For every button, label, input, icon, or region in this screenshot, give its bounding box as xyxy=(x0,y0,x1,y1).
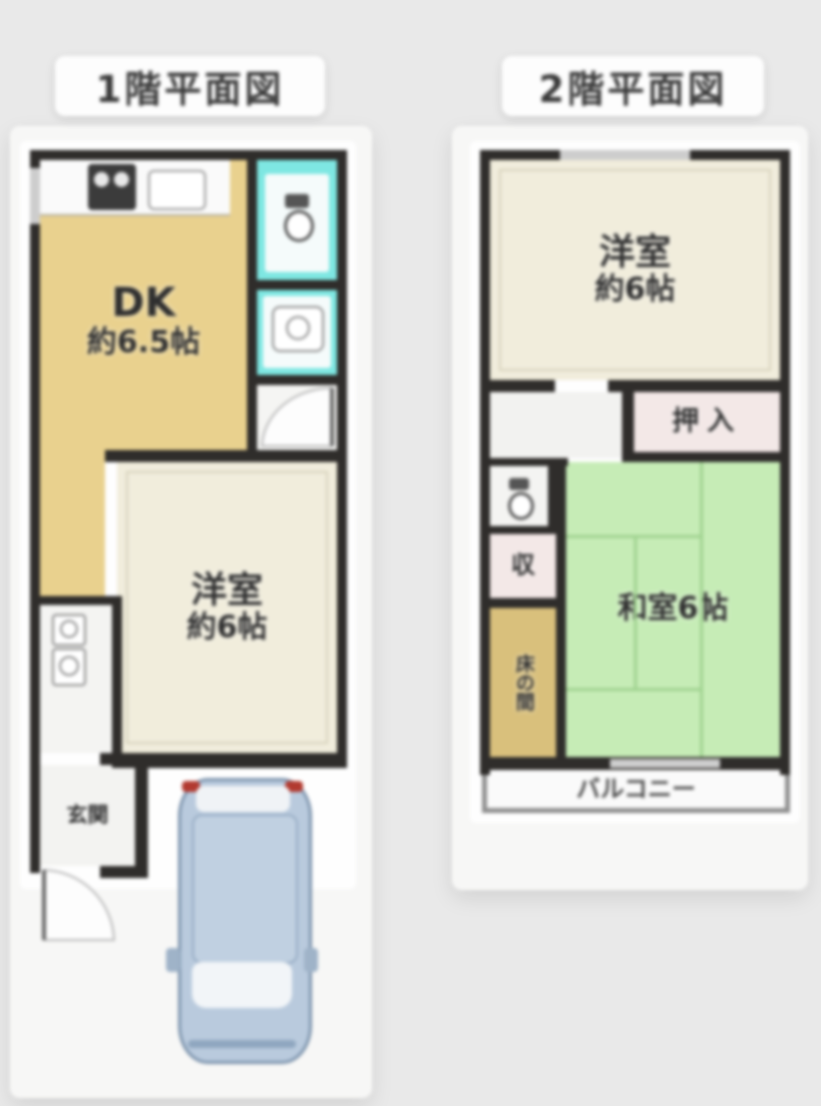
wall xyxy=(100,753,148,765)
wall xyxy=(247,150,257,458)
floorplan-image: 1階平面図 2階平面図 DK 約6.5帖 洋室 約6帖 xyxy=(0,0,821,1106)
balcony-door-segment xyxy=(610,759,720,768)
car-rear-window xyxy=(196,786,290,812)
tokonoma-label: 床の間 xyxy=(512,654,534,711)
wall xyxy=(100,866,148,878)
stove-icon xyxy=(88,164,136,210)
car-mirror-left xyxy=(166,948,180,972)
door-arc-entrance xyxy=(40,868,116,944)
wall xyxy=(556,462,566,767)
wall xyxy=(490,380,555,392)
floor1-title: 1階平面図 xyxy=(96,59,285,113)
stair-hall-2f xyxy=(490,392,622,458)
toilet-bowl-icon-2f xyxy=(508,492,534,520)
washbasin-bowl-icon xyxy=(286,316,310,340)
toilet-icon-1f xyxy=(285,194,309,208)
wall xyxy=(480,526,558,534)
wall xyxy=(780,150,790,775)
wall xyxy=(135,753,148,878)
entrance-label: 玄関 xyxy=(67,803,109,827)
hallway-1f xyxy=(40,452,105,598)
balcony-wall xyxy=(482,770,487,812)
dk-room-label: DK xyxy=(87,280,200,326)
tatami-mat-line xyxy=(634,535,637,688)
toilet-bowl-icon-1f xyxy=(284,210,314,242)
blurred-stage: 1階平面図 2階平面図 DK 約6.5帖 洋室 約6帖 xyxy=(0,0,821,1106)
western-room-2f-border xyxy=(499,169,771,371)
car-front-grille xyxy=(188,1040,296,1048)
wall xyxy=(30,596,122,605)
wall xyxy=(247,375,347,385)
tatami-mat-line xyxy=(566,688,703,691)
wall xyxy=(622,452,790,462)
window-segment-2f xyxy=(560,150,690,160)
entrance-room: 玄関 xyxy=(40,765,135,866)
car-windshield xyxy=(192,962,292,1008)
floor2-title: 2階平面図 xyxy=(539,59,728,113)
toilet-icon-2f xyxy=(509,478,529,490)
balcony-label: バルコニー xyxy=(576,776,696,804)
balcony: バルコニー xyxy=(487,772,785,808)
car-roof xyxy=(192,814,298,964)
wall xyxy=(105,450,347,462)
balcony-wall xyxy=(482,808,790,813)
floor2-title-badge: 2階平面図 xyxy=(502,56,764,116)
wall xyxy=(30,150,40,775)
tatami-room: 和室6帖 xyxy=(566,462,780,757)
wall xyxy=(622,385,634,462)
wall xyxy=(30,150,347,160)
car-mirror-right xyxy=(304,948,318,972)
window-segment-1f xyxy=(30,168,40,224)
washing-machine-drum-icon xyxy=(59,656,79,676)
storage-label: 収 xyxy=(511,552,535,580)
closet-room-2f: 押入 xyxy=(634,392,780,452)
closet-label: 押入 xyxy=(672,406,742,437)
wall xyxy=(112,600,122,765)
wall xyxy=(30,775,40,873)
door-arc-vestibule xyxy=(258,386,334,448)
floor1-title-badge: 1階平面図 xyxy=(55,56,325,116)
wall xyxy=(480,598,562,608)
kitchen-sink-icon xyxy=(148,170,206,210)
washbasin-bowl-laundry xyxy=(60,620,78,638)
western-room-2f: 洋室 約6帖 xyxy=(490,160,780,380)
western-room-1f: 洋室 約6帖 xyxy=(117,462,337,753)
tatami-mat-line xyxy=(700,462,703,757)
wall xyxy=(608,380,790,392)
balcony-wall xyxy=(785,770,790,812)
storage-room-2f: 収 xyxy=(490,534,556,598)
tokonoma-room: 床の間 xyxy=(490,608,556,757)
dk-room-size: 約6.5帖 xyxy=(87,326,200,361)
wall xyxy=(247,280,347,290)
western-room-1f-border xyxy=(126,471,328,744)
